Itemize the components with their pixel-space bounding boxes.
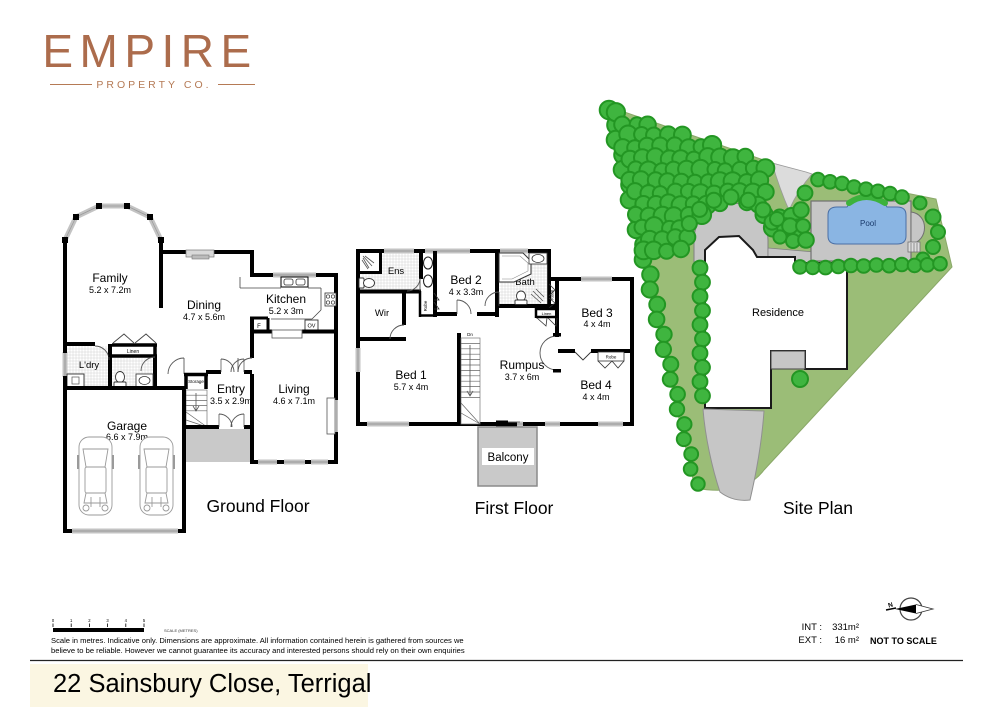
svg-text:Bed 2: Bed 2 [450,273,482,287]
svg-text:4 x 4m: 4 x 4m [582,392,609,402]
svg-text:PROPERTY CO.: PROPERTY CO. [96,79,211,91]
svg-text:EMPIRE: EMPIRE [42,25,257,77]
svg-text:Residence: Residence [752,307,804,319]
svg-text:Balcony: Balcony [488,452,529,464]
svg-text:L'dry: L'dry [79,360,100,371]
svg-text:INT :: INT : [802,622,822,633]
svg-text:Dining: Dining [187,298,221,312]
svg-text:Robe: Robe [606,355,617,360]
svg-text:4.7 x 5.6m: 4.7 x 5.6m [183,312,225,322]
svg-text:OV: OV [308,324,316,330]
svg-text:Entry: Entry [217,382,245,396]
svg-text:First Floor: First Floor [475,498,554,518]
svg-text:Kitchen: Kitchen [266,292,306,306]
svg-text:6.6 x 7.9m: 6.6 x 7.9m [106,432,148,442]
svg-text:5.7 x 4m: 5.7 x 4m [394,382,429,392]
svg-text:SCALE (METRES): SCALE (METRES) [164,628,198,633]
svg-text:believe to be reliable. Howeve: believe to be reliable. However we canno… [51,646,465,655]
svg-text:Pool: Pool [860,219,876,228]
svg-text:F: F [257,324,261,330]
svg-text:Wir: Wir [375,308,389,319]
svg-text:4.6 x 7.1m: 4.6 x 7.1m [273,396,315,406]
svg-text:Ens: Ens [388,266,405,277]
svg-text:4 x 3.3m: 4 x 3.3m [449,287,484,297]
svg-text:Storage: Storage [188,379,204,384]
svg-text:5.2 x 3m: 5.2 x 3m [269,306,304,316]
svg-text:22 Sainsbury Close, Terrigal: 22 Sainsbury Close, Terrigal [53,670,371,698]
svg-text:Bed 4: Bed 4 [580,378,612,392]
svg-text:Dn: Dn [467,332,473,337]
svg-text:Rumpus: Rumpus [500,358,545,372]
svg-text:5.2 x 7.2m: 5.2 x 7.2m [89,285,131,295]
svg-text:Living: Living [278,382,309,396]
svg-text:4 x 4m: 4 x 4m [583,319,610,329]
svg-text:16 m²: 16 m² [835,635,859,646]
svg-text:Linen: Linen [542,311,552,316]
svg-text:EXT :: EXT : [798,635,822,646]
svg-text:Bed 3: Bed 3 [581,306,613,320]
svg-text:Ground Floor: Ground Floor [206,496,309,516]
svg-text:331m²: 331m² [832,622,859,633]
svg-text:Garage: Garage [107,419,147,433]
svg-text:Site Plan: Site Plan [783,498,853,518]
svg-text:Bed 1: Bed 1 [395,368,427,382]
svg-text:Family: Family [92,271,127,285]
svg-text:NOT TO SCALE: NOT TO SCALE [870,636,937,646]
svg-text:3.7 x 6m: 3.7 x 6m [505,372,540,382]
svg-text:Robe: Robe [423,300,428,311]
svg-text:Linen: Linen [127,349,139,355]
svg-text:3.5 x 2.9m: 3.5 x 2.9m [210,396,252,406]
svg-text:Scale in metres. Indicative on: Scale in metres. Indicative only. Dimens… [51,636,464,645]
